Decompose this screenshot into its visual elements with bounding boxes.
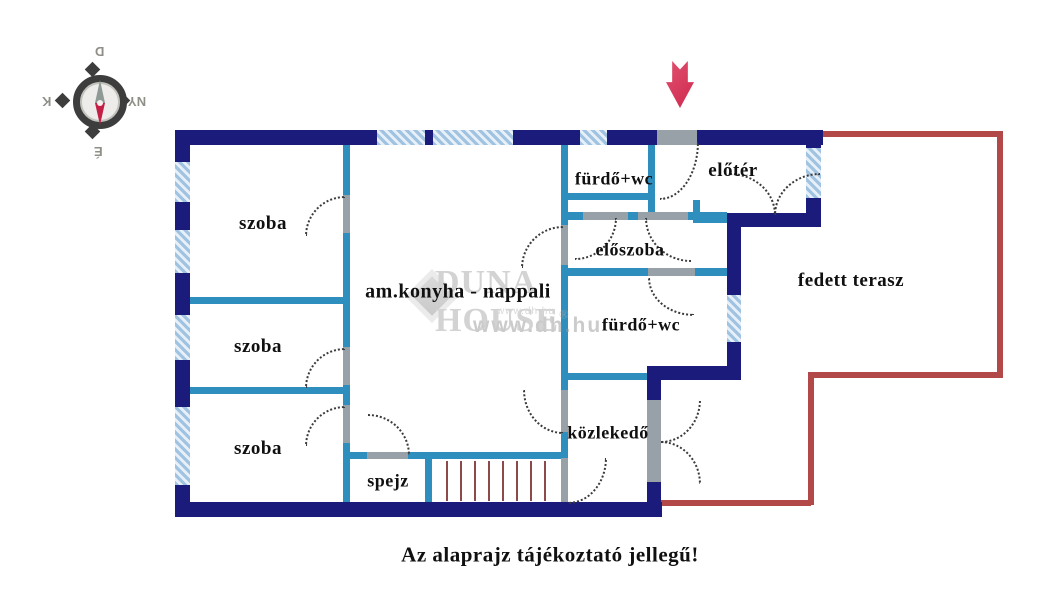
compass-rose-icon: D K NY É — [40, 40, 165, 165]
partition-szoba2-szoba3 — [190, 387, 343, 394]
door-arc-eloter-right — [774, 173, 820, 215]
door-arc-szoba2 — [305, 348, 345, 388]
compass-needle-south — [95, 103, 105, 125]
entrance-arrow-icon — [666, 61, 694, 108]
wall-eloter-bottom — [727, 213, 821, 227]
room-label-szoba-2: szoba — [234, 336, 282, 358]
terrace-outline-top — [820, 131, 1003, 137]
room-label-spejz: spejz — [367, 471, 409, 492]
room-label-furdo-wc-2: fürdő+wc — [602, 315, 680, 336]
wall-bottom — [175, 502, 662, 517]
room-label-eloter: előtér — [708, 160, 757, 182]
window-top-1 — [377, 130, 425, 145]
wall-terrace-top — [647, 366, 741, 380]
compass-center-dot — [97, 100, 103, 106]
door-arc-szoba1 — [305, 196, 345, 236]
door-arc-terrace-top — [661, 400, 701, 443]
staircase — [434, 461, 556, 501]
compass-label-left: K — [42, 94, 51, 109]
room-label-fedett-terasz: fedett terasz — [798, 270, 904, 292]
compass-point-west — [55, 93, 71, 109]
door-arc-szoba3 — [305, 406, 345, 446]
partition-szoba1-szoba2 — [190, 297, 343, 304]
door-arc-entrance — [660, 142, 699, 200]
window-top-2 — [433, 130, 513, 145]
door-opening-terrace — [647, 400, 661, 482]
window-left-4 — [175, 407, 190, 485]
door-arc-terrace-bottom — [661, 441, 701, 484]
room-label-eloszoba: előszoba — [596, 240, 665, 261]
room-label-furdo-wc-1: fürdő+wc — [575, 169, 653, 190]
room-label-szoba-3: szoba — [234, 438, 282, 460]
room-label-szoba-1: szoba — [239, 213, 287, 235]
terrace-outline-right — [997, 131, 1003, 378]
compass-label-bottom: É — [94, 144, 103, 159]
partition-bath1-bottom — [568, 193, 648, 200]
window-left-3 — [175, 315, 190, 360]
door-arc-spejz — [368, 414, 410, 455]
room-label-kozlekedo: közlekedő — [567, 423, 649, 444]
window-top-3 — [580, 130, 607, 145]
partition-bath2-bottom — [568, 373, 647, 380]
terrace-outline-step-h — [810, 372, 1003, 378]
room-label-nappali: am.konyha - nappali — [365, 281, 551, 304]
terrace-outline-step-v — [808, 372, 814, 505]
window-bath2-right — [727, 295, 741, 342]
window-left-1 — [175, 162, 190, 202]
door-arc-nappali-hall — [523, 390, 563, 434]
disclaimer-caption: Az alaprajz tájékoztató jellegű! — [401, 543, 699, 568]
watermark-url-large: www.dh.hu — [473, 314, 602, 338]
door-opening-stairs — [561, 458, 568, 502]
compass-label-top: D — [95, 44, 104, 59]
window-left-2 — [175, 230, 190, 273]
floor-plan: D K NY É DUNA HOUSE® www.dh.hu www.dh.hu… — [0, 0, 1043, 600]
terrace-outline-bottom — [661, 500, 811, 506]
compass-label-right: NY — [128, 94, 146, 109]
door-arc-stairs-hall — [568, 458, 607, 504]
